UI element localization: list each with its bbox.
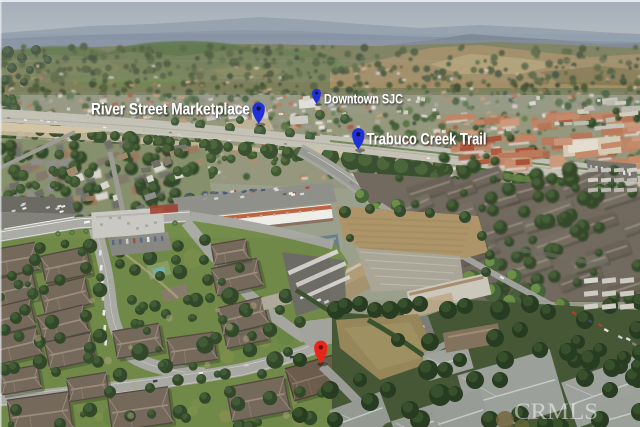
svg-text:Downtown SJC: Downtown SJC bbox=[324, 91, 403, 107]
svg-text:River Street Marketplace: River Street Marketplace bbox=[91, 100, 250, 119]
svg-text:Trabuco Creek Trail: Trabuco Creek Trail bbox=[367, 131, 487, 149]
svg-text:CRMLS: CRMLS bbox=[514, 399, 598, 424]
